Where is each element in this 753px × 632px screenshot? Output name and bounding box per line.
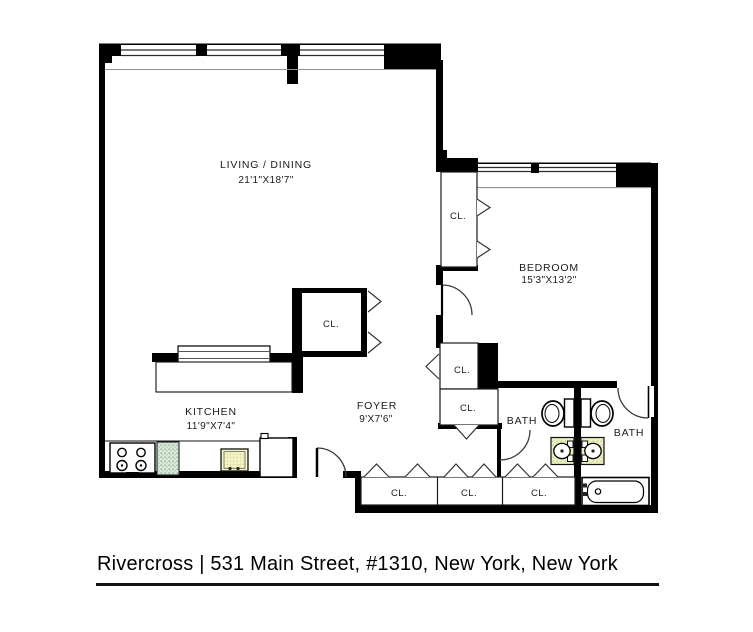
living-window-3 bbox=[300, 50, 384, 56]
faucet-icon bbox=[228, 467, 231, 470]
vanity-sink-right bbox=[581, 438, 604, 465]
living-room-label: LIVING / DINING bbox=[220, 159, 312, 171]
bedroom-window-mullion bbox=[531, 163, 539, 173]
hall-closet-lower-label: CL. bbox=[460, 403, 476, 414]
bedroom-door bbox=[442, 285, 472, 315]
living-window-1 bbox=[121, 50, 196, 56]
bath-left-door bbox=[500, 430, 530, 460]
windows bbox=[105, 50, 651, 188]
kitchen-dims: 11'9"X7'4" bbox=[187, 421, 236, 432]
toilet-right bbox=[581, 399, 613, 427]
living-window-2 bbox=[207, 50, 281, 56]
kitchen-counter bbox=[156, 362, 292, 392]
corner-living-ne bbox=[384, 44, 441, 71]
dishwasher bbox=[157, 442, 179, 475]
living-closet-label: CL. bbox=[323, 319, 339, 330]
kitchen-door bbox=[317, 448, 346, 477]
bedroom-closet-label: CL. bbox=[450, 211, 466, 222]
foyer-label: FOYER bbox=[357, 400, 397, 412]
burner-icon bbox=[118, 448, 126, 456]
living-closet-door-icon bbox=[368, 291, 381, 312]
faucet-icon bbox=[236, 467, 239, 470]
foyer-dims: 9'X7'6" bbox=[359, 414, 393, 425]
corner-bedroom-ne bbox=[616, 163, 658, 188]
wall-right bbox=[651, 187, 658, 513]
living-room-dims: 21'1"X18'7" bbox=[238, 175, 293, 186]
floorplan-page: LIVING / DINING 21'1"X18'7" BEDROOM 15'3… bbox=[0, 0, 753, 632]
foyer-closet-bifold-icon bbox=[533, 464, 558, 477]
foyer-closet-2-label: CL. bbox=[461, 488, 477, 499]
pass-through-counter bbox=[178, 346, 270, 364]
kitchen-label: KITCHEN bbox=[185, 406, 237, 418]
toilet-left bbox=[542, 399, 574, 427]
bedroom-label: BEDROOM bbox=[519, 262, 579, 274]
floorplan-drawing: LIVING / DINING 21'1"X18'7" BEDROOM 15'3… bbox=[0, 0, 753, 540]
wall-bath-vestibule bbox=[497, 429, 501, 477]
living-closet-door-icon bbox=[368, 332, 381, 353]
vanity-sink-left bbox=[551, 438, 574, 465]
refrigerator bbox=[260, 434, 293, 478]
stove bbox=[110, 443, 155, 475]
faucet-icon bbox=[583, 492, 587, 496]
hall-closet-upper-label: CL. bbox=[454, 365, 470, 376]
wall-living-right bbox=[436, 60, 443, 162]
foyer-closet-bifold-icon bbox=[444, 464, 468, 477]
bath-right-door bbox=[618, 386, 649, 418]
bedroom-window-2 bbox=[539, 168, 616, 172]
wall-left bbox=[99, 44, 105, 478]
kitchen-sink bbox=[221, 449, 248, 471]
caption-underline bbox=[96, 583, 659, 586]
foyer-closet-bifold-icon bbox=[405, 464, 430, 477]
foyer-closet-3-label: CL. bbox=[531, 488, 547, 499]
hall-closet-upper-door-icon bbox=[426, 354, 439, 379]
bedroom-dims: 15'3"X13'2" bbox=[521, 275, 576, 286]
foyer-closet-bifold-icon bbox=[364, 464, 389, 477]
bath-right-label: BATH bbox=[614, 427, 644, 439]
bedroom-window-1 bbox=[478, 168, 531, 172]
foyer-closet-bifold-icon bbox=[472, 464, 496, 477]
foyer-closet-bifold-icon bbox=[505, 464, 530, 477]
hall-closet-lower-door-icon bbox=[454, 425, 479, 439]
bath-left-label: BATH bbox=[507, 415, 537, 427]
bathtub bbox=[582, 478, 649, 506]
drain-icon bbox=[595, 489, 600, 494]
bedroom-closet-door-icon bbox=[477, 199, 490, 216]
burner-icon bbox=[137, 448, 145, 456]
faucet-icon bbox=[583, 484, 587, 488]
listing-caption: Rivercross | 531 Main Street, #1310, New… bbox=[97, 553, 697, 576]
bedroom-closet-door-icon bbox=[477, 241, 490, 258]
wall-bedroom-bottom bbox=[477, 381, 617, 388]
window-mullion bbox=[196, 44, 207, 57]
window-pillar bbox=[281, 44, 300, 57]
foyer-closet-1-label: CL. bbox=[391, 488, 407, 499]
